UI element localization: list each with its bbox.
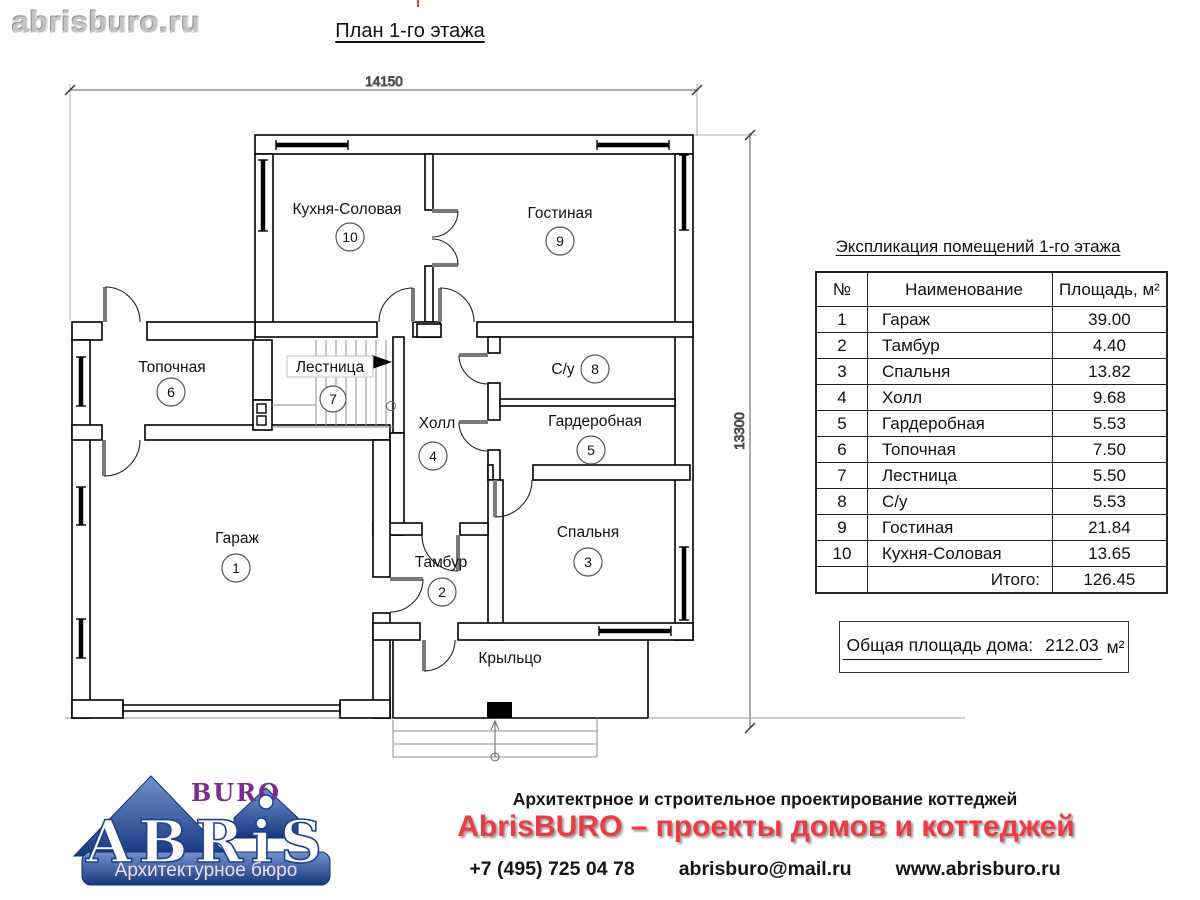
table-header-row: № Наименование Площадь, м² — [816, 272, 1167, 307]
chimney-flues — [257, 404, 266, 425]
table-row: 3Спальня13.82 — [816, 359, 1167, 385]
room-label-tambour: Тамбур — [415, 554, 468, 571]
total-area-value: 212.03 — [1045, 635, 1099, 656]
table-title: Экспликация помещений 1-го этажа — [820, 237, 1136, 257]
table-row: 5Гардеробная5.53 — [816, 411, 1167, 437]
door-leaves — [104, 211, 495, 671]
room-label-bedroom: Спальня — [557, 524, 619, 541]
footer-phone: +7 (495) 725 04 78 — [469, 858, 634, 881]
total-area-label: Общая площадь дома: — [846, 635, 1033, 656]
walls — [72, 135, 693, 718]
svg-text:8: 8 — [591, 361, 599, 377]
svg-text:5: 5 — [587, 442, 595, 458]
svg-text:2: 2 — [438, 584, 446, 600]
logo-house-peak — [234, 788, 298, 838]
logo-banner — [82, 852, 330, 885]
table-row: 9Гостиная21.84 — [816, 515, 1167, 541]
table-row: 7Лестница5.50 — [816, 463, 1167, 489]
room-number-circles — [157, 223, 609, 606]
room-schedule-table: № Наименование Площадь, м² 1Гараж39.00 2… — [815, 271, 1168, 594]
door-arcs — [104, 211, 532, 671]
footer-contacts: +7 (495) 725 04 78 abrisburo@mail.ru www… — [420, 858, 1110, 881]
total-area-unit: м² — [1107, 637, 1125, 658]
room-label-hall: Холл — [419, 415, 456, 432]
col-header-num: № — [816, 272, 868, 307]
svg-text:9: 9 — [556, 233, 564, 249]
logo-i-dot — [259, 795, 273, 809]
logo-abris-text: ABRiS — [85, 808, 326, 876]
dimension-top: 14150 — [65, 75, 702, 320]
room-label-stairs: Лестница — [296, 359, 365, 376]
stairs — [272, 340, 396, 427]
svg-text:10: 10 — [342, 229, 358, 245]
table-total-row: Итого: 126.45 — [816, 567, 1167, 594]
footer-slogan: AbrisBURO – проекты домов и коттеджей — [385, 810, 1147, 844]
table-row: 8С/у5.53 — [816, 489, 1167, 515]
porch — [393, 640, 648, 761]
total-label: Итого: — [868, 567, 1053, 594]
svg-text:4: 4 — [429, 448, 437, 464]
stairs-direction-arrow — [316, 355, 392, 369]
room-labels: Кухня-Соловая Гостиная Топочная Лестница… — [138, 201, 641, 667]
footer-tagline: Архитектрное и строительное проектирован… — [420, 789, 1110, 810]
logo-buro-text: BURO — [191, 778, 281, 807]
col-header-name: Наименование — [868, 272, 1053, 307]
room-label-wc: С/у — [551, 361, 575, 378]
table-row: 1Гараж39.00 — [816, 307, 1167, 333]
garage-door — [123, 702, 340, 714]
red-tick-mark — [417, 0, 419, 7]
room-label-boiler: Топочная — [138, 359, 205, 376]
dimension-right: 13300 — [693, 130, 757, 733]
svg-text:3: 3 — [584, 554, 592, 570]
porch-column — [487, 702, 512, 718]
table-row: 2Тамбур4.40 — [816, 333, 1167, 359]
room-label-porch: Крыльцо — [478, 650, 541, 667]
footer-email: abrisburo@mail.ru — [679, 858, 852, 881]
entry-arrow — [491, 721, 499, 761]
footer-website: www.abrisburo.ru — [896, 858, 1061, 881]
table-row: 6Топочная7.50 — [816, 437, 1167, 463]
total-area-box: Общая площадь дома: 212.03 м² — [839, 621, 1129, 673]
page: { "header": { "site": "abrisburo.ru", "t… — [0, 0, 1200, 900]
dimension-width-label: 14150 — [365, 75, 403, 89]
room-label-kitchen: Кухня-Соловая — [292, 201, 401, 218]
table-row: 10Кухня-Соловая13.65 — [816, 541, 1167, 567]
abris-logo: BURO ABRiS Архитектурное бюро — [68, 768, 340, 896]
logo-mountain — [74, 776, 228, 856]
room-label-wardrobe: Гардеробная — [548, 413, 642, 430]
room-label-garage: Гараж — [215, 530, 259, 547]
svg-text:6: 6 — [167, 384, 175, 400]
total-value: 126.45 — [1053, 567, 1167, 594]
page-title: План 1-го этажа — [300, 20, 520, 43]
svg-text:1: 1 — [232, 560, 240, 576]
dimension-height-label: 13300 — [732, 412, 747, 450]
col-header-area: Площадь, м² — [1053, 272, 1167, 307]
logo-sub-text: Архитектурное бюро — [115, 860, 298, 881]
site-watermark: abrisburo.ru — [12, 6, 201, 40]
svg-text:7: 7 — [329, 391, 337, 407]
room-label-living: Гостиная — [527, 205, 592, 222]
table-row: 4Холл9.68 — [816, 385, 1167, 411]
room-numbers: 10 9 6 7 4 8 5 1 2 3 — [167, 229, 599, 600]
windows — [76, 140, 689, 658]
